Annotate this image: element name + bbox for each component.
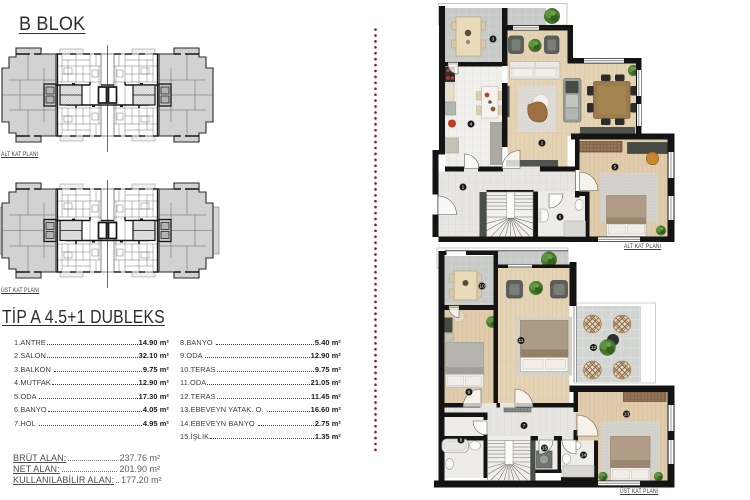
svg-text:7: 7	[523, 423, 526, 429]
svg-text:9: 9	[468, 390, 471, 396]
svg-text:8: 8	[460, 438, 463, 444]
svg-text:15: 15	[542, 446, 548, 452]
svg-text:1: 1	[462, 185, 465, 191]
svg-text:13: 13	[624, 412, 630, 418]
svg-text:5: 5	[614, 165, 617, 171]
svg-text:6: 6	[559, 215, 562, 221]
svg-text:14: 14	[581, 453, 587, 459]
svg-text:3: 3	[492, 37, 495, 43]
svg-text:2: 2	[541, 141, 544, 147]
svg-text:10: 10	[479, 284, 485, 290]
svg-text:11: 11	[519, 338, 524, 344]
svg-text:12: 12	[591, 345, 597, 351]
svg-text:4: 4	[470, 122, 473, 128]
